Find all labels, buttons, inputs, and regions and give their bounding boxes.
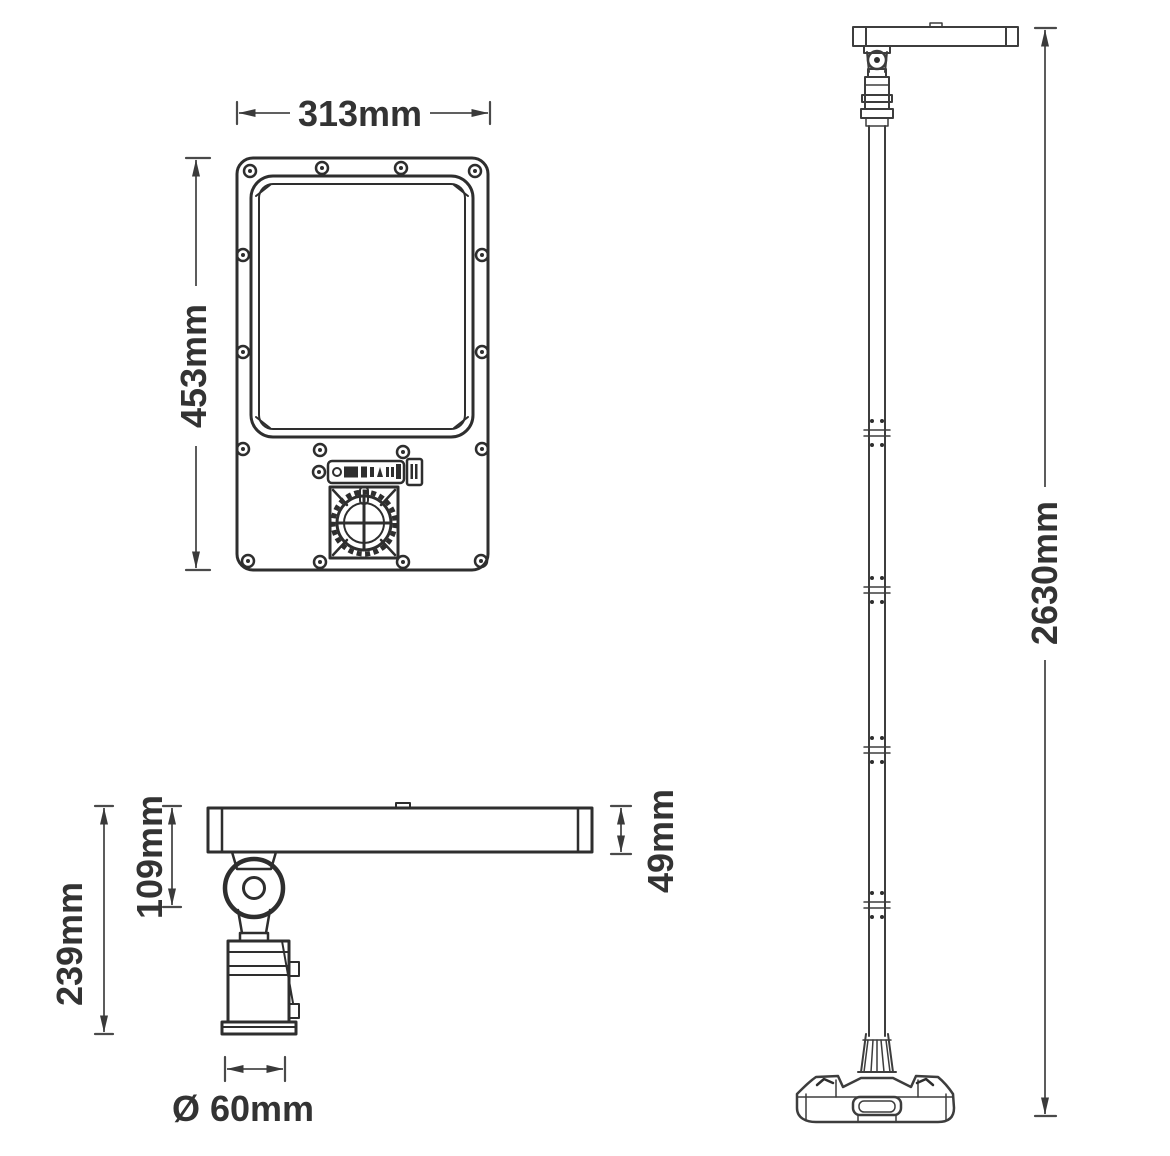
screw: [244, 165, 256, 177]
cable-gland-label: [407, 459, 422, 485]
screw: [314, 556, 326, 568]
dim-front-height: 453mm: [173, 158, 214, 570]
dim-front-width-label: 313mm: [298, 93, 422, 134]
dim-pole-height: 2630mm: [1024, 28, 1065, 1116]
dim-front-height-label: 453mm: [173, 304, 214, 428]
screw: [316, 162, 328, 174]
screw: [476, 249, 488, 261]
pole-joint: [864, 736, 890, 764]
base-handle: [853, 1097, 901, 1122]
screw: [242, 555, 254, 567]
pole-joint: [864, 576, 890, 604]
dim-side-pivot-label: 109mm: [129, 795, 170, 919]
screw: [397, 446, 409, 458]
dim-side-total-height: 239mm: [49, 806, 113, 1034]
mounting-bracket: [222, 852, 299, 1034]
pole-bracket: [861, 46, 893, 126]
pole-shaft: [869, 126, 885, 1036]
screw: [237, 346, 249, 358]
dim-panel-thickness: 49mm: [611, 789, 681, 893]
dim-front-width: 313mm: [237, 93, 490, 134]
weighted-base: [797, 1076, 954, 1122]
screw: [476, 443, 488, 455]
lens-frame: [251, 176, 473, 437]
front-view: 313mm 453mm: [173, 93, 490, 570]
base-collar: [858, 1034, 896, 1072]
screw: [237, 249, 249, 261]
dim-pole-diameter: Ø 60mm: [172, 1057, 314, 1129]
pole-joint: [864, 891, 890, 919]
dim-panel-thickness-label: 49mm: [640, 789, 681, 893]
pole-section-joints: [864, 419, 890, 919]
panel-top-outline: [853, 27, 1018, 46]
dim-pole-height-label: 2630mm: [1024, 501, 1065, 645]
pole-joint: [864, 419, 890, 447]
screw: [237, 443, 249, 455]
screw: [313, 466, 325, 478]
side-view: 239mm 109mm 49mm Ø 60mm: [49, 789, 681, 1129]
screw: [314, 444, 326, 456]
dim-pole-diameter-label: Ø 60mm: [172, 1088, 314, 1129]
screw: [395, 162, 407, 174]
dim-side-total-label: 239mm: [49, 882, 90, 1006]
screw: [476, 346, 488, 358]
rating-label: [328, 461, 404, 483]
dim-side-pivot-height: 109mm: [129, 795, 181, 919]
adjustment-knob: [330, 487, 398, 558]
panel-side-outline: [208, 808, 592, 852]
dimension-drawing-page: 313mm 453mm: [0, 0, 1170, 1156]
technical-drawing-canvas: 313mm 453mm: [0, 0, 1170, 1156]
screw: [469, 165, 481, 177]
pivot-joint: [225, 859, 283, 917]
pole-view: 2630mm: [797, 23, 1065, 1122]
